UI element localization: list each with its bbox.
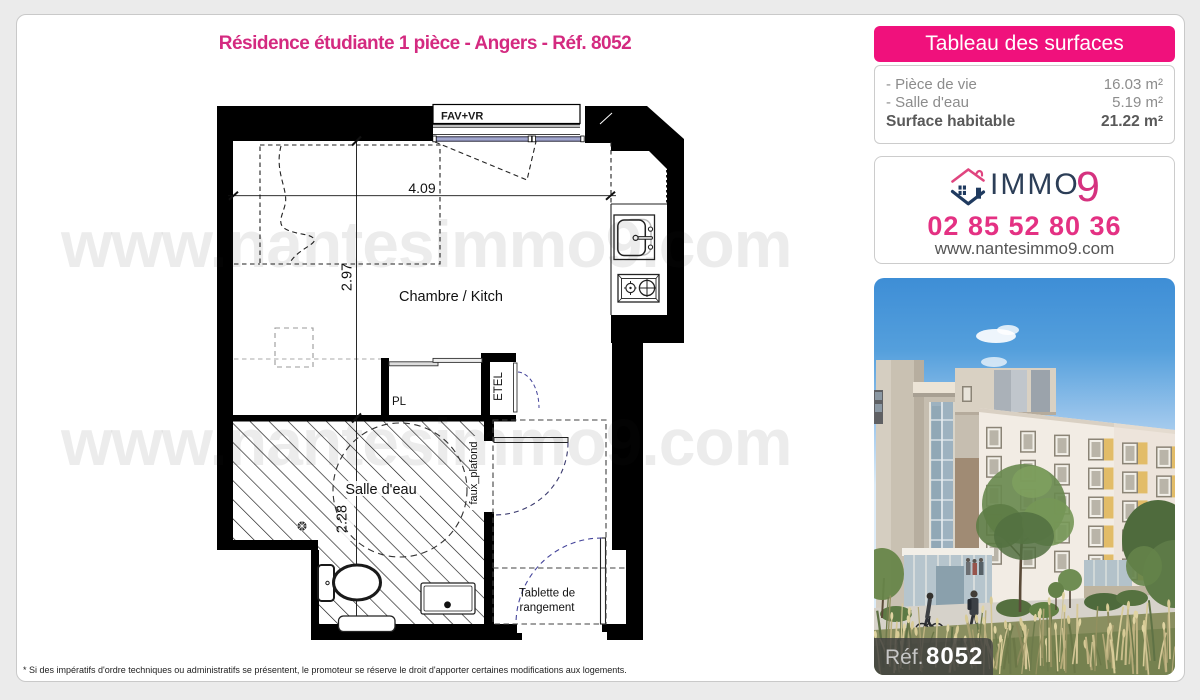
svg-text:8052: 8052 — [926, 643, 983, 670]
svg-text:IMMO: IMMO — [990, 168, 1080, 201]
svg-text:Chambre / Kitch: Chambre / Kitch — [399, 289, 503, 305]
svg-text:Salle d'eau: Salle d'eau — [345, 482, 416, 498]
svg-text:2.28: 2.28 — [335, 505, 351, 533]
svg-text:Tablette de: Tablette de — [519, 588, 575, 600]
svg-text:FAV+VR: FAV+VR — [441, 111, 483, 123]
svg-text:ETEL: ETEL — [493, 372, 505, 401]
svg-text:Réf.: Réf. — [885, 646, 924, 669]
svg-text:rangement: rangement — [520, 602, 576, 614]
svg-text:9: 9 — [1076, 165, 1100, 211]
svg-text:4.09: 4.09 — [408, 180, 435, 196]
